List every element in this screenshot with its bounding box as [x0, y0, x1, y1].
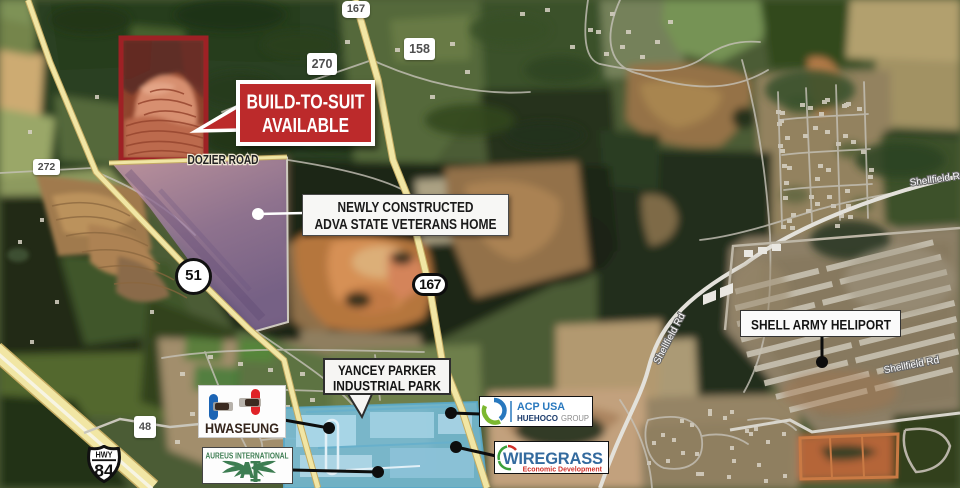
svg-text:HUEHOCO: HUEHOCO	[517, 413, 558, 423]
svg-text:GROUP: GROUP	[561, 413, 589, 423]
svg-text:WIREGRASS: WIREGRASS	[503, 450, 603, 468]
svg-text:84: 84	[94, 461, 114, 481]
svg-text:Economic Development: Economic Development	[523, 467, 603, 474]
svg-text:HWY: HWY	[96, 450, 113, 460]
svg-text:SHELL ARMY HELIPORT: SHELL ARMY HELIPORT	[751, 318, 892, 333]
svg-text:ACP USA: ACP USA	[517, 401, 565, 413]
svg-text:HWASEUNG: HWASEUNG	[205, 420, 279, 436]
svg-text:AUREUS INTERNATIONAL: AUREUS INTERNATIONAL	[206, 452, 289, 461]
